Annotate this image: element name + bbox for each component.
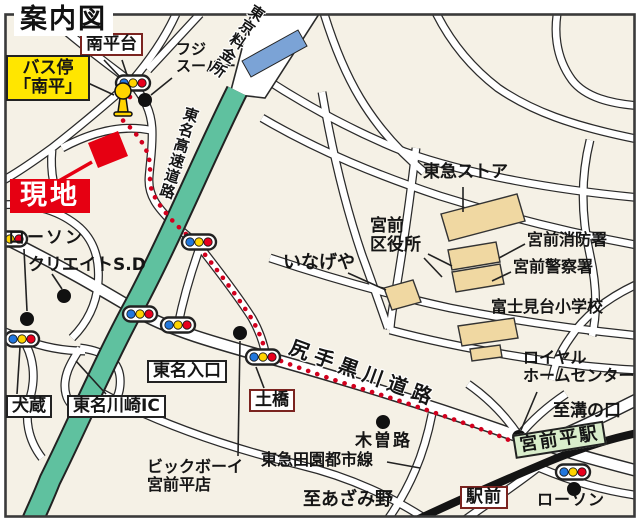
label-bus-stop: バス停 「南平」 [6,55,90,101]
label-denentoshi-line: 東急田園都市線 [261,451,373,469]
guide-map-page: 案内図 南平台 バス停 「南平」 フジ スーパー 東京料金所 東名高速道路 現地… [0,0,640,522]
landmark-dot-icon [376,415,390,429]
label-to-azamino: 至あざみ野 [303,490,393,510]
landmark-dot-icon [233,326,247,340]
traffic-light-icon [5,332,39,347]
label-inageya: いなげや [283,253,355,273]
traffic-light-icon [246,350,280,365]
label-to-mizonokuchi: 至溝の口 [553,402,621,421]
label-police-station: 宮前警察署 [513,258,593,276]
traffic-light-icon [123,307,157,322]
label-ward-office: 宮前 区役所 [370,217,421,255]
label-tomei-kawasaki-ic: 東名川崎IC [67,395,166,418]
label-dobashi: 土橋 [249,389,295,412]
label-inukura: 犬蔵 [6,395,52,418]
landmark-dot-icon [57,289,71,303]
landmark-dot-icon [20,312,34,326]
label-tomei-entrance: 東名入口 [147,360,227,383]
bus-stop-line1: バス停 [14,59,82,78]
label-lawson-south: ローソン [537,491,605,509]
label-tokyu-store: 東急ストア [423,163,508,182]
traffic-light-icon [556,465,590,480]
label-ekimae: 駅前 [460,486,508,509]
label-royal-home-center: ロイヤル ホームセンター [523,349,635,385]
page-title: 案内図 [14,0,113,36]
label-fire-station: 宮前消防署 [527,231,607,249]
bus-stop-line2: 「南平」 [14,78,82,97]
label-big-boy: ビックボーイ 宮前平店 [147,458,243,494]
label-fujimidai-elementary: 富士見台小学校 [491,298,603,316]
label-create-sd: クリエイトS.D [28,256,146,275]
traffic-light-icon [161,318,195,333]
traffic-light-icon [182,235,216,250]
label-lawson-north: ローソン [8,229,84,248]
label-minamidaira-heights: 南平台 [80,33,143,56]
label-kisoji: 木曽路 [355,432,412,451]
landmark-dot-icon [138,93,152,107]
label-site: 現地 [10,179,90,213]
